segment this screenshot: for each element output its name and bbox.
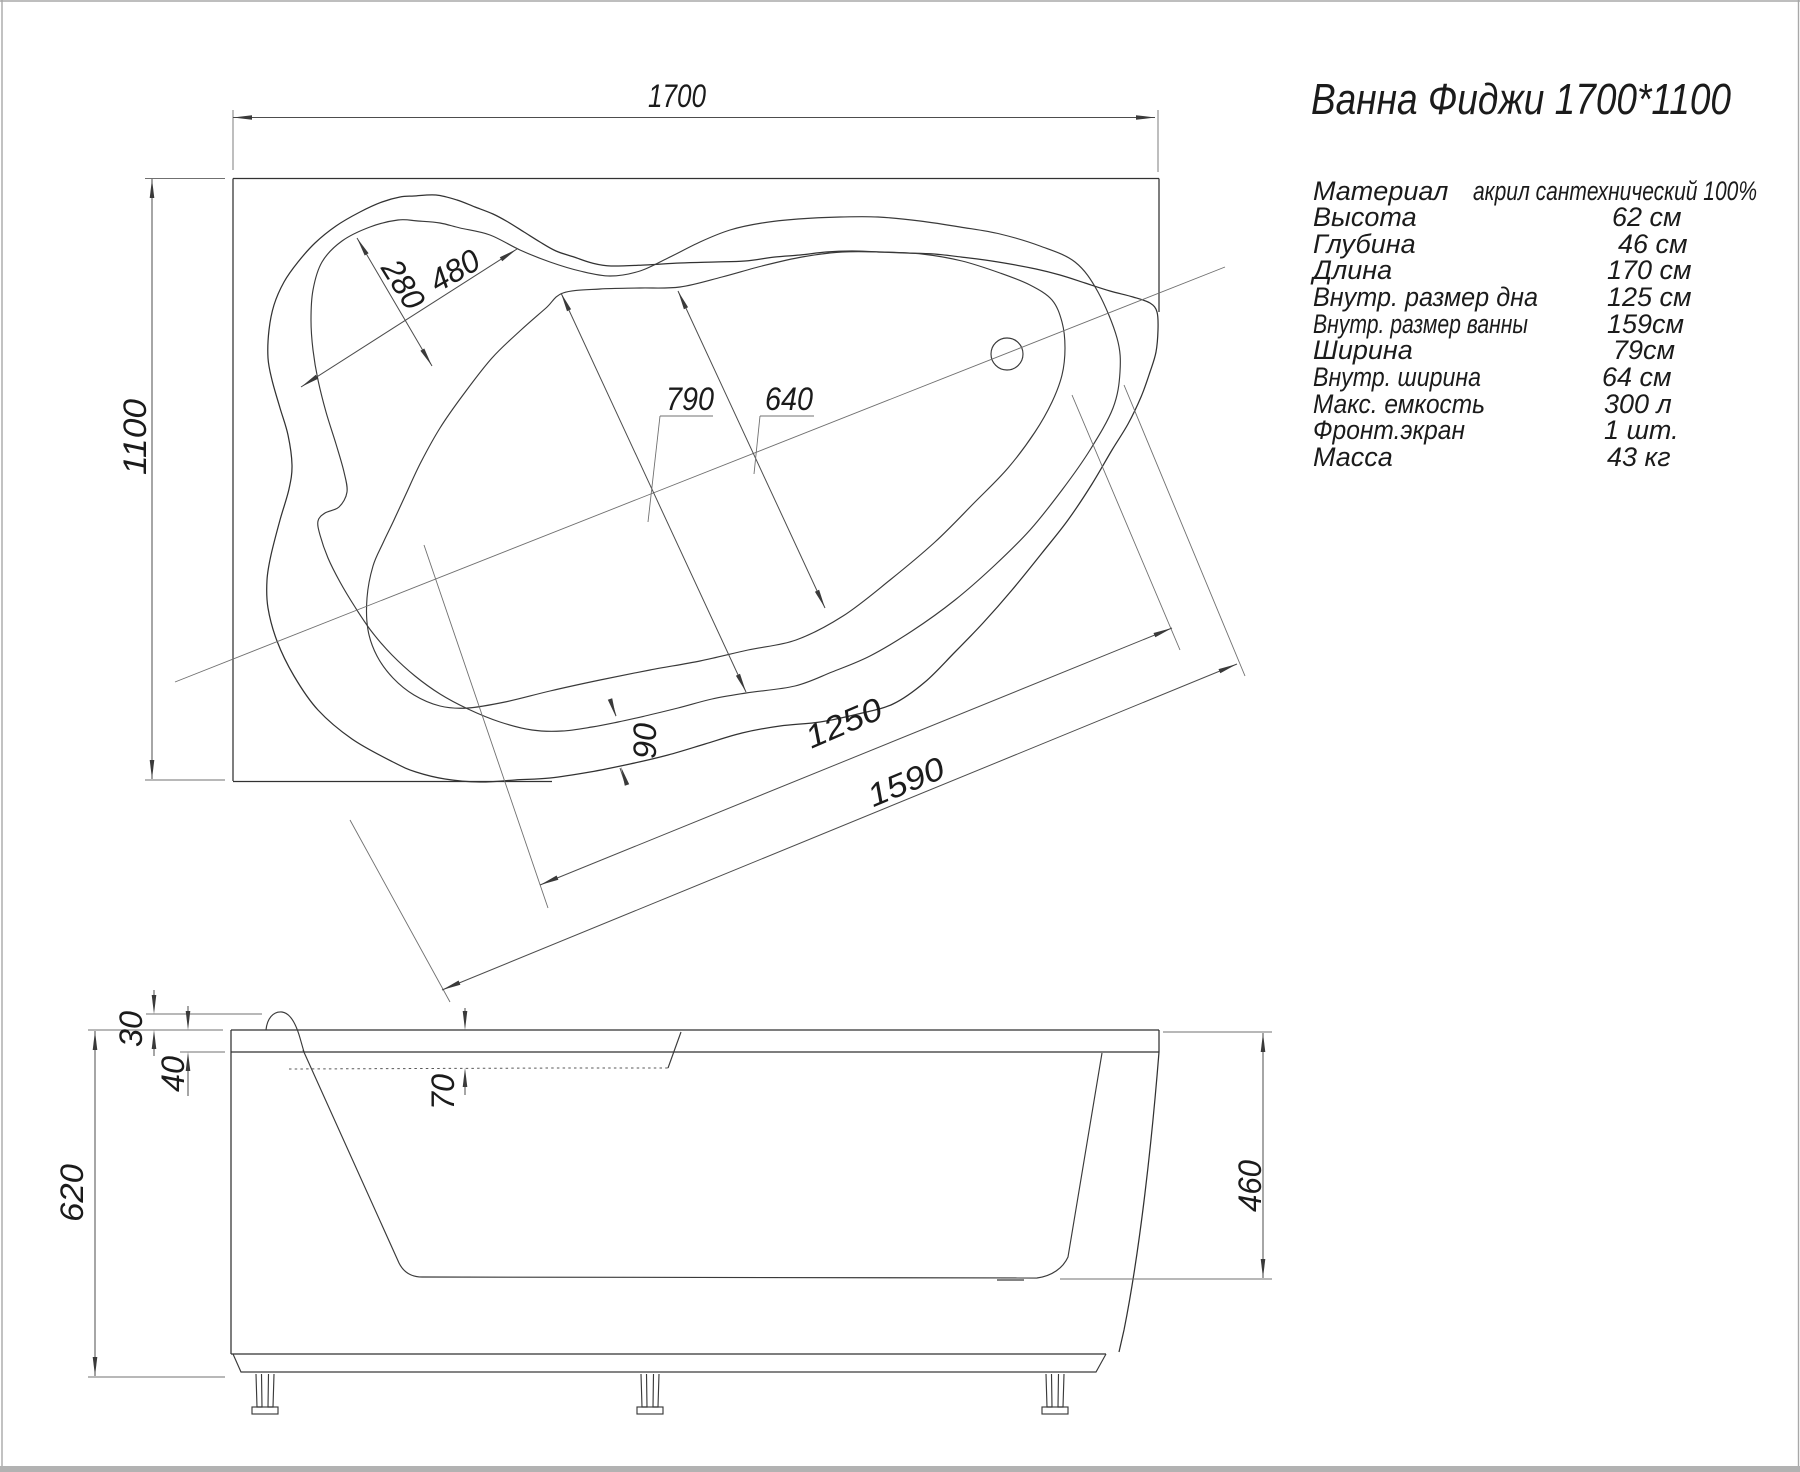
svg-text:790: 790 bbox=[666, 381, 714, 417]
svg-text:1 шт.: 1 шт. bbox=[1604, 415, 1679, 445]
svg-text:Фронт.экран: Фронт.экран bbox=[1313, 415, 1465, 445]
svg-text:1700: 1700 bbox=[648, 78, 706, 114]
svg-text:620: 620 bbox=[54, 1164, 90, 1222]
svg-text:170 см: 170 см bbox=[1607, 255, 1692, 285]
svg-text:Ширина: Ширина bbox=[1313, 335, 1413, 365]
svg-text:79см: 79см bbox=[1613, 335, 1675, 365]
svg-text:Внутр. ширина: Внутр. ширина bbox=[1313, 362, 1481, 392]
svg-text:64 см: 64 см bbox=[1602, 362, 1672, 392]
svg-text:Ванна Фиджи 1700*1100: Ванна Фиджи 1700*1100 bbox=[1311, 75, 1731, 124]
svg-text:30: 30 bbox=[113, 1011, 149, 1047]
svg-text:1100: 1100 bbox=[117, 399, 153, 475]
svg-text:Масса: Масса bbox=[1313, 442, 1393, 472]
svg-text:Длина: Длина bbox=[1310, 255, 1392, 285]
svg-text:90: 90 bbox=[627, 723, 663, 759]
svg-text:40: 40 bbox=[155, 1056, 191, 1092]
svg-text:125 см: 125 см bbox=[1607, 282, 1692, 312]
svg-text:43 кг: 43 кг bbox=[1607, 442, 1671, 472]
svg-text:640: 640 bbox=[765, 381, 813, 417]
svg-text:Высота: Высота bbox=[1313, 202, 1417, 232]
svg-text:62 см: 62 см bbox=[1612, 202, 1682, 232]
svg-text:Внутр. размер дна: Внутр. размер дна bbox=[1313, 282, 1538, 312]
svg-text:460: 460 bbox=[1232, 1160, 1268, 1212]
svg-text:70: 70 bbox=[425, 1074, 461, 1110]
